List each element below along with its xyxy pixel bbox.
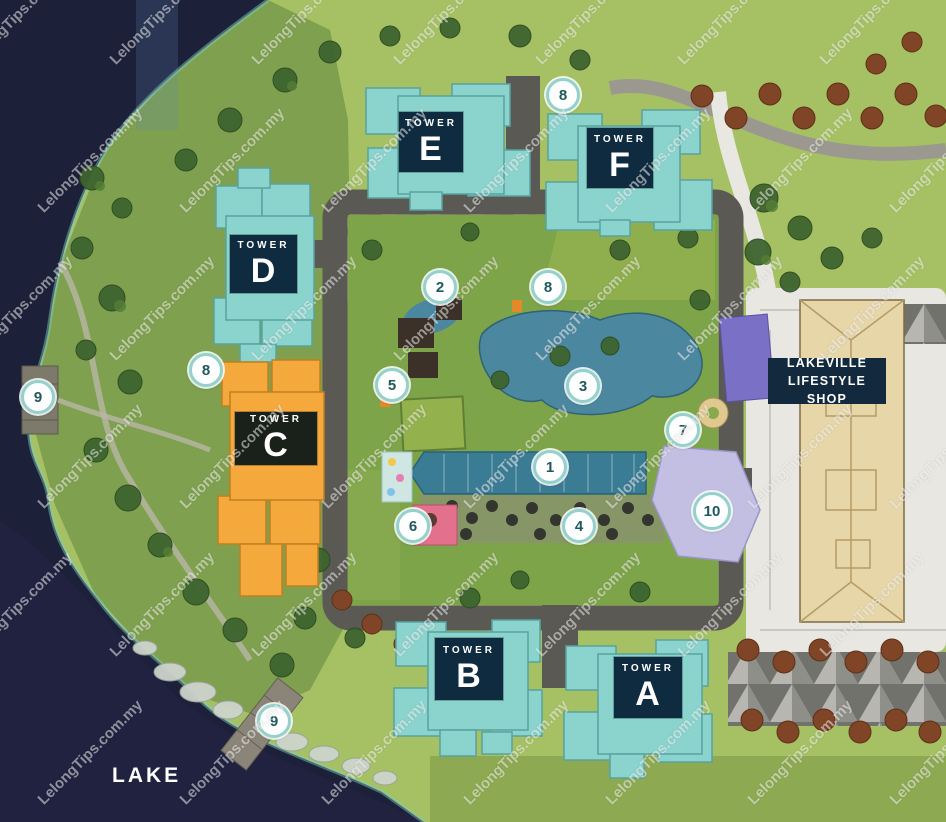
marker-7: 7 — [666, 413, 700, 447]
waterfall-sheen — [136, 0, 178, 130]
marker-3-pond: 3 — [566, 369, 600, 403]
tower-e-letter: E — [419, 132, 443, 166]
tower-a-prefix: TOWER — [622, 664, 674, 674]
sports-court — [719, 314, 774, 402]
marker-number: 6 — [409, 518, 417, 535]
marker-number: 2 — [436, 279, 444, 296]
shop-label-line1: LAKEVILLE — [787, 354, 867, 372]
lap-pool — [410, 452, 646, 494]
marker-number: 8 — [202, 362, 210, 379]
marker-5: 5 — [375, 368, 409, 402]
marker-number: 8 — [559, 87, 567, 104]
marker-number: 10 — [704, 503, 721, 520]
marker-4: 4 — [562, 509, 596, 543]
tower-b-letter: B — [456, 659, 482, 693]
shop-label-line2: LIFESTYLE SHOP — [768, 372, 886, 408]
marker-8-north: 8 — [546, 78, 580, 112]
marker-number: 3 — [579, 378, 587, 395]
marker-9-west-jetty: 9 — [21, 380, 55, 414]
south-lawn-shade — [430, 756, 946, 822]
tower-c-label: TOWER C — [235, 412, 317, 465]
marker-number: 7 — [679, 422, 687, 439]
site-plan-map: TOWER E TOWER F TOWER D TOWER C TOWER B … — [0, 0, 946, 822]
marker-number: 4 — [575, 518, 583, 535]
lifestyle-shop-building — [800, 300, 904, 622]
marker-number: 8 — [544, 279, 552, 296]
marker-number: 5 — [388, 377, 396, 394]
marker-number: 1 — [546, 459, 554, 476]
tower-b-prefix: TOWER — [443, 646, 495, 656]
marker-8-center: 8 — [531, 270, 565, 304]
marker-6-playground: 6 — [396, 509, 430, 543]
tower-b-label: TOWER B — [435, 638, 503, 700]
tower-c-letter: C — [263, 428, 289, 462]
tower-c-prefix: TOWER — [250, 415, 302, 425]
tower-d-letter: D — [251, 254, 277, 288]
tower-a-label: TOWER A — [614, 657, 682, 718]
tower-e-prefix: TOWER — [405, 119, 457, 129]
tower-e-label: TOWER E — [399, 112, 463, 172]
tower-f-letter: F — [609, 148, 631, 182]
fountain-planting — [707, 407, 719, 419]
tower-f-label: TOWER F — [587, 128, 653, 188]
accent-orange-2 — [512, 300, 522, 312]
tower-d-prefix: TOWER — [237, 241, 289, 251]
marker-8-west: 8 — [189, 353, 223, 387]
lake-label: LAKE — [112, 764, 181, 788]
tower-a-letter: A — [635, 677, 661, 711]
tower-d-label: TOWER D — [230, 235, 297, 293]
lifestyle-shop-label: LAKEVILLE LIFESTYLE SHOP — [768, 358, 886, 404]
marker-10-parcel: 10 — [693, 492, 731, 530]
marker-2: 2 — [423, 270, 457, 304]
marker-1-lap-pool: 1 — [533, 450, 567, 484]
tower-f-prefix: TOWER — [594, 135, 646, 145]
event-lawn — [401, 396, 466, 451]
marker-9-south-jetty: 9 — [257, 704, 291, 738]
marker-number: 9 — [34, 389, 42, 406]
marker-number: 9 — [270, 713, 278, 730]
